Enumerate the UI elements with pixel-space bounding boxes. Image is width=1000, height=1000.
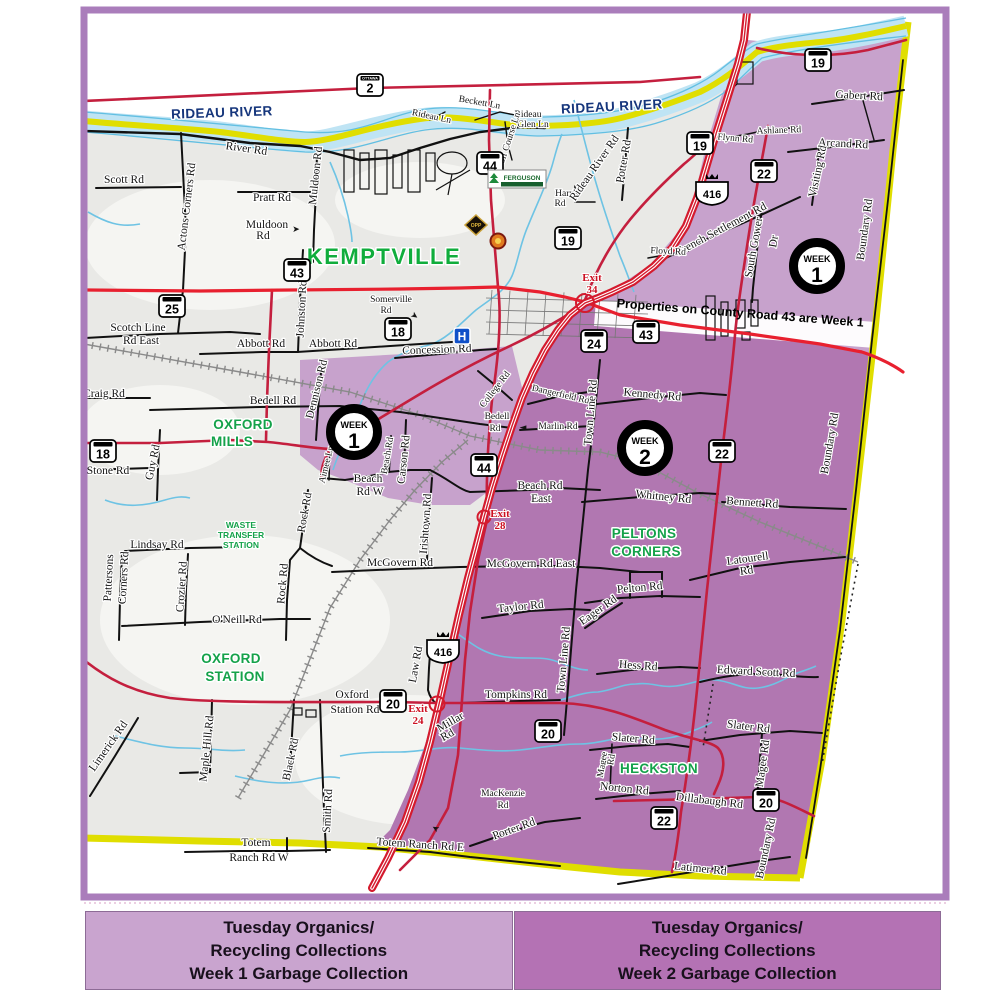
map-label: KEMPTVILLE — [307, 244, 461, 269]
map-label: O'Neill Rd — [212, 614, 262, 626]
map-label: Abbott Rd — [309, 338, 357, 350]
svg-text:416: 416 — [434, 647, 452, 659]
legend-week1-line3: Week 1 Garbage Collection — [86, 962, 512, 985]
county-road-shield-2: OTTAWA 2 — [357, 74, 383, 96]
map-label: Somerville — [370, 295, 412, 305]
county-road-shield-18: 18 — [90, 440, 116, 462]
map-label: Tompkins Rd — [485, 689, 547, 701]
legend-week2-line1: Tuesday Organics/ — [515, 916, 941, 939]
map-label: Smith Rd — [321, 788, 335, 833]
svg-text:1: 1 — [811, 264, 823, 287]
svg-text:2: 2 — [639, 446, 651, 469]
county-road-shield-24: 24 — [581, 330, 607, 352]
map-label: Scott Rd — [104, 174, 144, 186]
county-road-shield-20: 20 — [535, 720, 561, 742]
map-label: McGovern Rd East — [487, 558, 577, 570]
county-road-shield-25: 25 — [159, 295, 185, 317]
svg-text:44: 44 — [477, 462, 491, 476]
garbage-collection-map-page: RIDEAU RIVERRIDEAU RIVERKEMPTVILLEOXFORD… — [0, 0, 1000, 1000]
legend-week1-panel: Tuesday Organics/ Recycling Collections … — [85, 911, 513, 990]
svg-text:WEEK: WEEK — [341, 420, 369, 430]
svg-text:18: 18 — [391, 326, 405, 340]
svg-text:20: 20 — [386, 698, 400, 712]
map-label: CORNERS — [611, 544, 681, 559]
svg-text:22: 22 — [757, 168, 771, 182]
svg-text:20: 20 — [541, 728, 555, 742]
map-label: Rd W — [357, 486, 384, 498]
county-road-shield-19: 19 — [805, 49, 831, 71]
svg-text:43: 43 — [639, 329, 653, 343]
map-label: RIDEAU RIVER — [171, 103, 273, 122]
hospital-icon: H — [454, 328, 470, 344]
svg-text:FERGUSON: FERGUSON — [504, 175, 541, 182]
county-road-shield-44: 44 — [471, 454, 497, 476]
legend: Tuesday Organics/ Recycling Collections … — [85, 911, 941, 990]
map-label: Pratt Rd — [253, 192, 291, 204]
map-canvas: RIDEAU RIVERRIDEAU RIVERKEMPTVILLEOXFORD… — [0, 0, 1000, 1000]
fire-crest-icon — [491, 234, 506, 249]
legend-week1-line2: Recycling Collections — [86, 939, 512, 962]
svg-text:19: 19 — [811, 57, 825, 71]
map-label: HECKSTON — [620, 761, 698, 776]
county-road-shield-20: 20 — [380, 690, 406, 712]
map-label: Rd — [380, 306, 391, 316]
map-label: Gabert Rd — [835, 89, 883, 103]
map-label: Bedell Rd — [250, 395, 297, 407]
map-label: Rd East — [123, 335, 160, 347]
legend-week2-panel: Tuesday Organics/ Recycling Collections … — [514, 911, 942, 990]
county-road-shield-43: 43 — [633, 321, 659, 343]
map-label: Rd — [256, 230, 270, 242]
svg-text:43: 43 — [290, 267, 304, 281]
svg-text:H: H — [458, 330, 467, 344]
map-label: OXFORD — [213, 417, 273, 432]
map-label: Exit — [408, 703, 428, 715]
week-1-badge: WEEK1 — [331, 409, 378, 456]
map-label: Beach Rd — [517, 480, 562, 492]
map-label: Abbott Rd — [237, 338, 285, 350]
map-label: 28 — [495, 520, 507, 532]
map-label: STATION — [205, 669, 264, 684]
county-road-shield-19: 19 — [687, 132, 713, 154]
map-label: Concession Rd — [402, 343, 472, 357]
map-label: McGovern Rd — [367, 557, 433, 569]
county-road-shield-43: 43 — [284, 259, 310, 281]
svg-text:24: 24 — [587, 338, 601, 352]
map-label: Rd — [739, 564, 754, 578]
map-label: Rd — [489, 424, 500, 434]
map-label: Oxford — [335, 689, 368, 701]
county-road-shield-20: 20 — [753, 789, 779, 811]
svg-text:19: 19 — [693, 140, 707, 154]
map-label: MILLS — [211, 434, 253, 449]
map-label: Craig Rd — [83, 388, 125, 400]
map-label: 34 — [587, 284, 599, 296]
svg-text:WEEK: WEEK — [632, 436, 660, 446]
map-label: ➤ — [292, 225, 300, 235]
week-1-badge: WEEK1 — [794, 243, 841, 290]
map-label: Exit — [490, 508, 510, 520]
legend-week2-line3: Week 2 Garbage Collection — [515, 962, 941, 985]
svg-text:OPP: OPP — [471, 223, 482, 229]
svg-text:1: 1 — [348, 430, 360, 453]
svg-text:416: 416 — [703, 189, 721, 201]
legend-week2-line2: Recycling Collections — [515, 939, 941, 962]
county-road-shield-22: 22 — [709, 440, 735, 462]
map-label: PELTONS — [612, 526, 677, 541]
map-label: TRANSFER — [218, 530, 264, 540]
county-road-shield-22: 22 — [751, 160, 777, 182]
map-label: 24 — [413, 715, 425, 727]
week-2-badge: WEEK2 — [622, 425, 669, 472]
map-label: Totem — [241, 837, 270, 849]
map-label: Glen Ln — [517, 120, 549, 130]
map-label: ◄ — [520, 423, 527, 433]
svg-text:OTTAWA: OTTAWA — [362, 77, 378, 81]
svg-text:22: 22 — [715, 448, 729, 462]
svg-text:2: 2 — [367, 82, 374, 96]
map-label: Stone Rd — [87, 465, 130, 477]
county-road-shield-18: 18 — [385, 318, 411, 340]
map-label: Exit — [582, 272, 602, 284]
map-label: Rd — [606, 753, 618, 766]
map-label: STATION — [223, 540, 259, 550]
svg-text:19: 19 — [561, 235, 575, 249]
svg-text:WEEK: WEEK — [804, 254, 832, 264]
map-label: OXFORD — [201, 651, 261, 666]
map-label: Rd — [554, 199, 565, 209]
map-label: Beach — [354, 473, 383, 485]
map-label: Pattersons — [102, 553, 116, 601]
map-label: East — [531, 493, 552, 505]
map-label: WASTE — [226, 520, 257, 530]
svg-text:20: 20 — [759, 797, 773, 811]
map-label: Bedell — [485, 412, 510, 422]
map-label: Ranch Rd W — [229, 852, 288, 864]
legend-week1-line1: Tuesday Organics/ — [86, 916, 512, 939]
county-road-shield-19: 19 — [555, 227, 581, 249]
svg-text:22: 22 — [657, 815, 671, 829]
map-label: Station Rd — [331, 704, 380, 716]
map-label: Scotch Line — [110, 322, 165, 334]
svg-text:18: 18 — [96, 448, 110, 462]
map-label: MacKenzie — [481, 789, 525, 799]
county-road-shield-22: 22 — [651, 807, 677, 829]
map-label: Marlin Rd — [538, 422, 578, 432]
map-label: Ashlane Rd — [756, 125, 801, 137]
ferguson-logo: FERGUSON — [488, 170, 546, 188]
map-label: Dr — [767, 234, 781, 248]
map-label: Lindsay Rd — [130, 539, 184, 551]
map-label: Rd — [497, 801, 508, 811]
map-label: Floyd Rd — [650, 246, 686, 258]
svg-text:25: 25 — [165, 303, 179, 317]
